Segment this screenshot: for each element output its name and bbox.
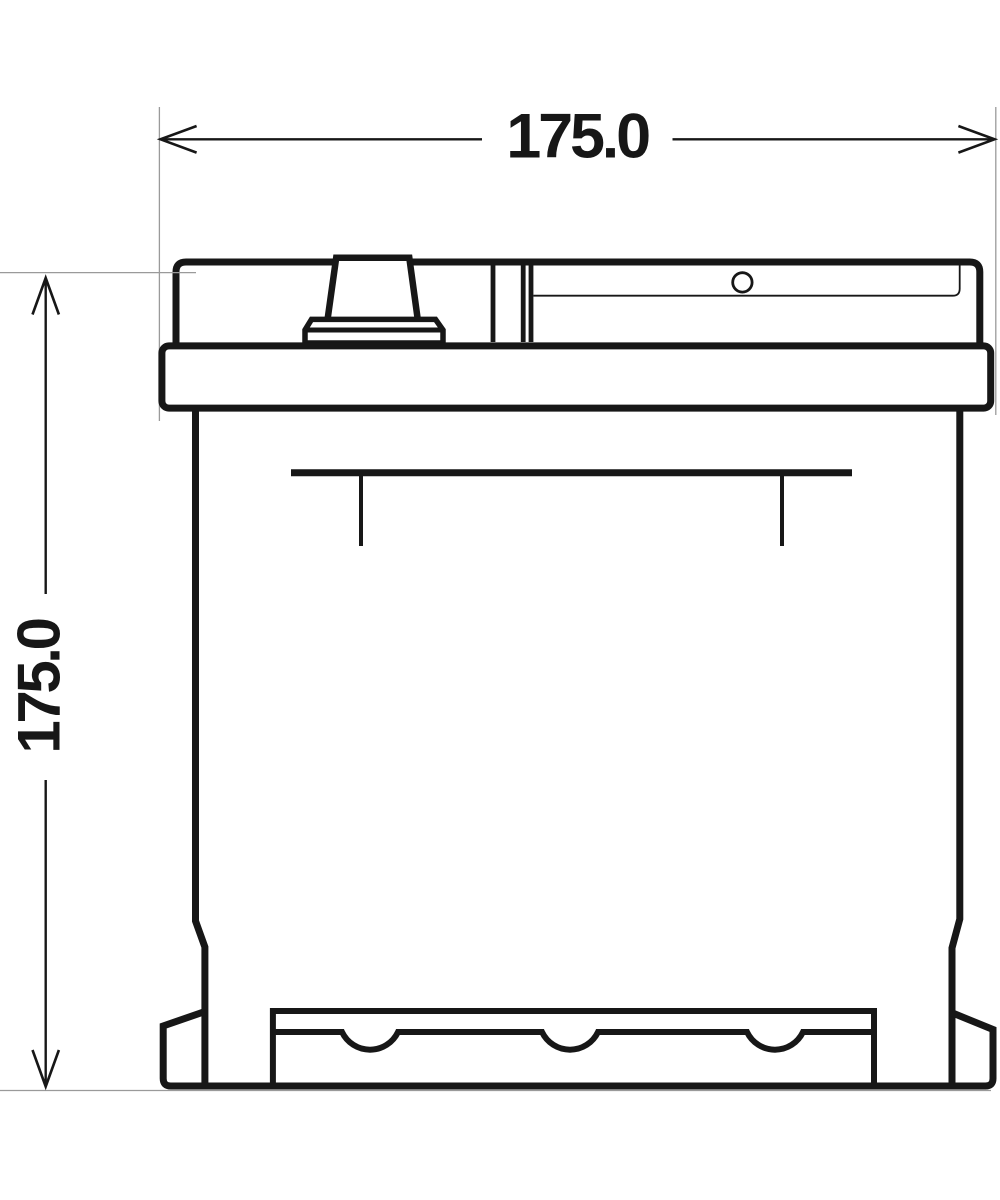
svg-text:175.0: 175.0 — [506, 102, 649, 172]
svg-text:175.0: 175.0 — [6, 619, 73, 753]
